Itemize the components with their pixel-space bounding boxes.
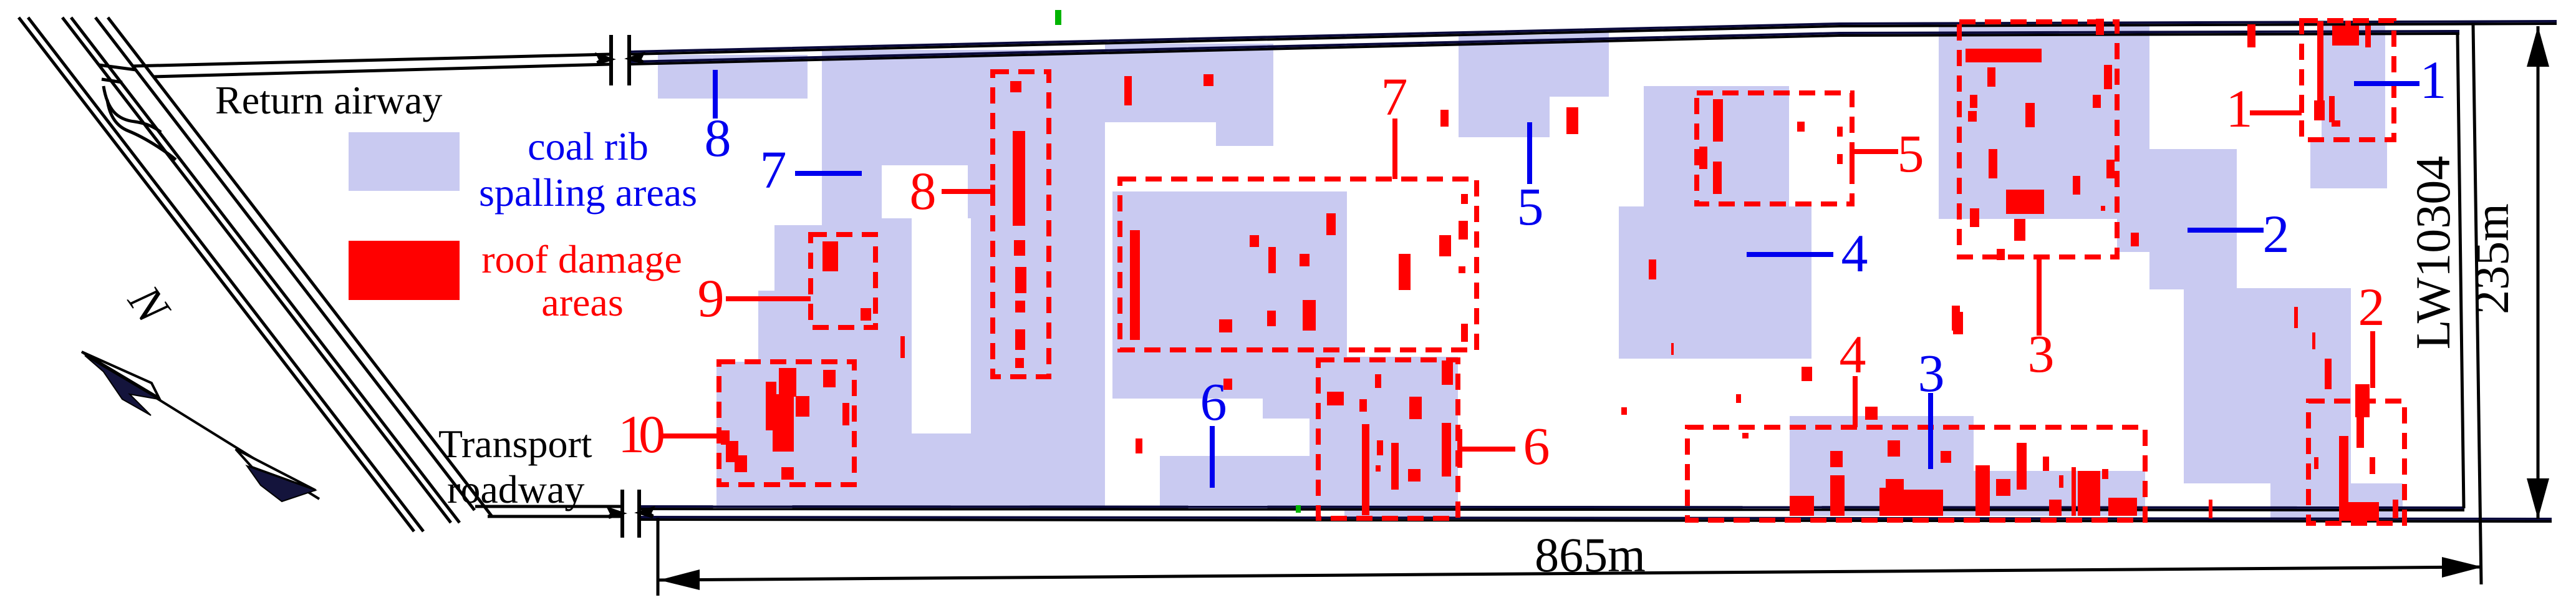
svg-text:7: 7 bbox=[760, 140, 787, 200]
svg-text:2: 2 bbox=[2263, 204, 2290, 264]
svg-text:1: 1 bbox=[2226, 79, 2253, 138]
svg-text:LW10304: LW10304 bbox=[2406, 156, 2460, 349]
svg-text:8: 8 bbox=[705, 108, 731, 168]
svg-text:2: 2 bbox=[2358, 277, 2385, 337]
svg-text:1: 1 bbox=[2420, 50, 2447, 110]
svg-text:Return airway: Return airway bbox=[215, 78, 442, 122]
svg-text:235m: 235m bbox=[2464, 203, 2519, 314]
svg-text:9: 9 bbox=[698, 268, 725, 328]
svg-text:4: 4 bbox=[1841, 223, 1868, 283]
svg-text:5: 5 bbox=[1517, 177, 1544, 236]
svg-text:3: 3 bbox=[2028, 324, 2055, 384]
svg-text:6: 6 bbox=[1523, 416, 1550, 476]
svg-text:roadway: roadway bbox=[447, 467, 584, 511]
svg-text:6: 6 bbox=[1200, 372, 1227, 432]
svg-text:3: 3 bbox=[1918, 343, 1945, 403]
svg-text:10: 10 bbox=[618, 404, 663, 464]
svg-text:8: 8 bbox=[910, 161, 937, 221]
svg-text:4: 4 bbox=[1840, 324, 1866, 384]
svg-text:areas: areas bbox=[541, 280, 623, 324]
svg-text:865m: 865m bbox=[1535, 528, 1646, 582]
svg-text:spalling areas: spalling areas bbox=[479, 170, 697, 215]
svg-text:7: 7 bbox=[1381, 67, 1408, 127]
svg-text:Transport: Transport bbox=[438, 422, 592, 466]
svg-text:roof damage: roof damage bbox=[481, 237, 682, 281]
svg-text:coal rib: coal rib bbox=[528, 124, 649, 168]
svg-text:5: 5 bbox=[1898, 123, 1924, 183]
